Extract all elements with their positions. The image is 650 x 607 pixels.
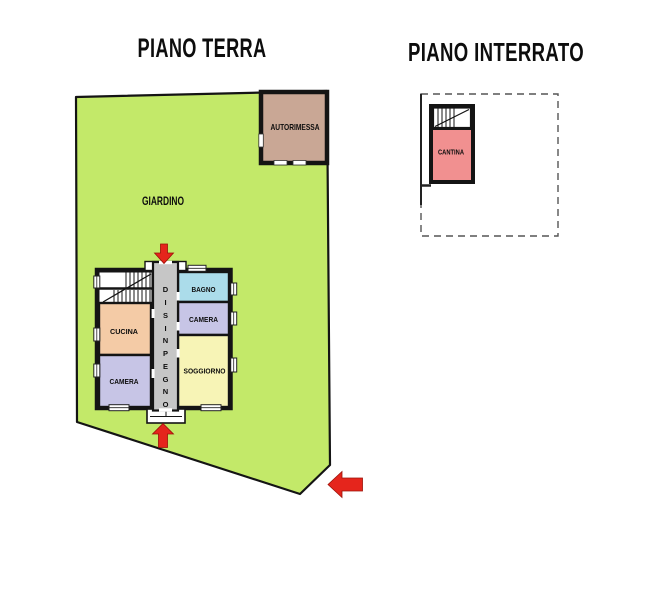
- hallway-letter: P: [163, 349, 168, 358]
- garage-door-gap: [293, 161, 306, 166]
- staircase-steps-upper: [126, 272, 150, 288]
- bedroom-right-label: CAMERA: [189, 315, 219, 324]
- hallway-letter: I: [164, 324, 166, 333]
- access-arrow-left-icon: [328, 472, 363, 498]
- garage-label: AUTORIMESSA: [271, 122, 320, 132]
- hallway-letter: G: [163, 375, 169, 384]
- kitchen-label: CUCINA: [110, 327, 139, 336]
- hallway-letter: I: [164, 298, 166, 307]
- hallway-letter: D: [163, 285, 169, 294]
- garden-label: GIARDINO: [142, 196, 184, 208]
- hallway-letter: O: [163, 400, 169, 409]
- bathroom-label: BAGNO: [192, 285, 216, 294]
- cellar-label: CANTINA: [438, 150, 464, 157]
- floor-plan-drawing: PIANO TERRA PIANO INTERRATO GIARDINO AUT…: [0, 0, 650, 607]
- hallway-letter: E: [163, 362, 168, 371]
- hallway-letter: S: [163, 311, 168, 320]
- cellar-staircase: [429, 108, 475, 129]
- staircase: [99, 272, 152, 303]
- floor-plan-page: PIANO TERRA PIANO INTERRATO GIARDINO AUT…: [0, 0, 650, 607]
- hallway-letter: N: [163, 387, 168, 396]
- hallway-letter: N: [163, 336, 168, 345]
- garage-door-gap: [274, 161, 287, 166]
- garage-window: [259, 134, 264, 147]
- basement-title: PIANO INTERRATO: [408, 37, 584, 67]
- living-room-label: SOGGIORNO: [184, 367, 226, 376]
- ground-floor-title: PIANO TERRA: [138, 33, 267, 63]
- bedroom-left-label: CAMERA: [110, 377, 140, 386]
